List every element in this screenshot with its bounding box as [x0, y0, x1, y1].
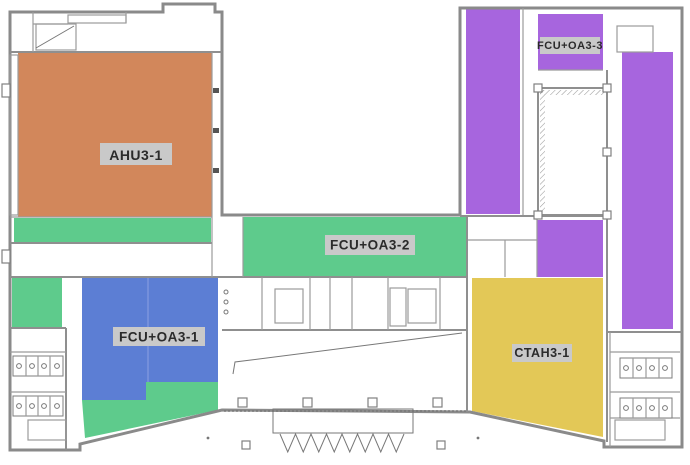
hvac-zones — [12, 8, 673, 438]
stairs-bottom-right — [615, 420, 665, 440]
toilet-stalls-right — [620, 358, 672, 418]
floor-plan-svg: AHU3-1 FCU+OA3-2 FCU+OA3-1 FCU+OA3-3 CTA… — [0, 0, 690, 465]
zone-label-text-ctah3-1: CTAH3-1 — [514, 346, 569, 360]
entrance-canopy — [224, 409, 468, 452]
stairs-core-right — [408, 289, 436, 323]
inner-courtyard — [534, 84, 611, 219]
stairs-bottom-left — [28, 420, 66, 440]
toilet-stalls-left — [13, 356, 63, 416]
zone-label-ctah3-1: CTAH3-1 — [512, 344, 572, 362]
zone-label-fcu-oa3-2: FCU+OA3-2 — [325, 235, 415, 255]
zone-fcu-oa3-3-right-column — [622, 52, 673, 329]
zone-label-fcu-oa3-3: FCU+OA3-3 — [537, 37, 603, 54]
zone-label-text-ahu3-1: AHU3-1 — [109, 147, 163, 163]
stairs-core-left — [275, 289, 303, 323]
zone-fcu-oa3-3-mid-block — [537, 220, 603, 277]
zone-label-fcu-oa3-1: FCU+OA3-1 — [113, 327, 205, 346]
zone-fcu-oa3-3-left-column — [466, 8, 520, 214]
zone-fcu-oa3-2-left-patch — [12, 277, 62, 328]
stairs-top-right — [617, 26, 653, 52]
zone-label-ahu3-1: AHU3-1 — [100, 143, 172, 165]
floor-plan-canvas: AHU3-1 FCU+OA3-2 FCU+OA3-1 FCU+OA3-3 CTA… — [0, 0, 690, 465]
zone-label-text-fcu-oa3-1: FCU+OA3-1 — [119, 330, 199, 345]
zone-label-text-fcu-oa3-2: FCU+OA3-2 — [330, 238, 410, 253]
zone-ahu3-1 — [18, 52, 212, 217]
stairs-top-left — [36, 24, 76, 50]
zone-label-text-fcu-oa3-3: FCU+OA3-3 — [537, 40, 603, 52]
zone-fcu-oa3-2-left-strip — [14, 218, 211, 243]
